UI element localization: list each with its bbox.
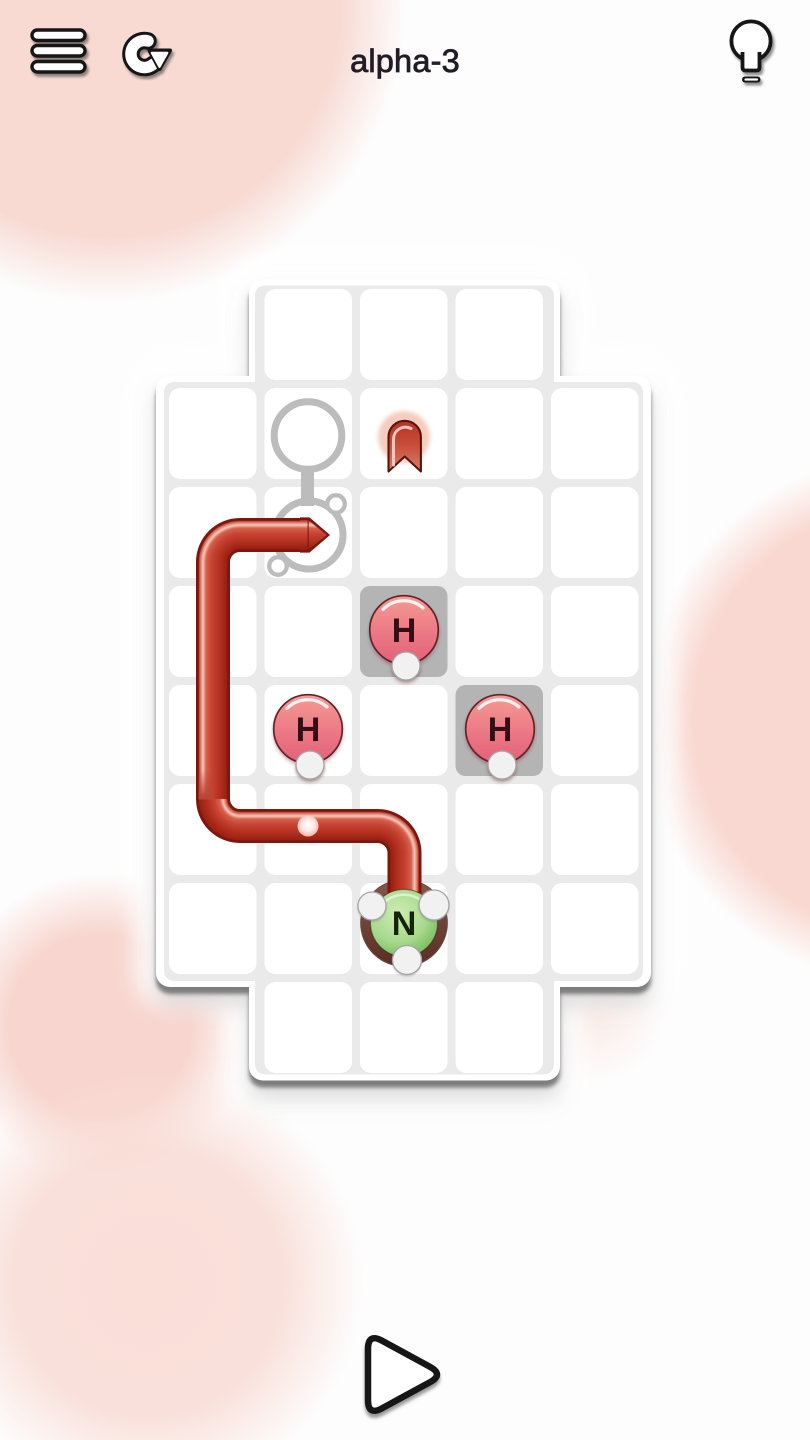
svg-text:H: H	[488, 711, 513, 749]
svg-text:alpha-3: alpha-3	[350, 43, 460, 79]
svg-text:H: H	[296, 711, 321, 749]
svg-text:H: H	[392, 612, 417, 650]
svg-text:N: N	[392, 905, 417, 943]
